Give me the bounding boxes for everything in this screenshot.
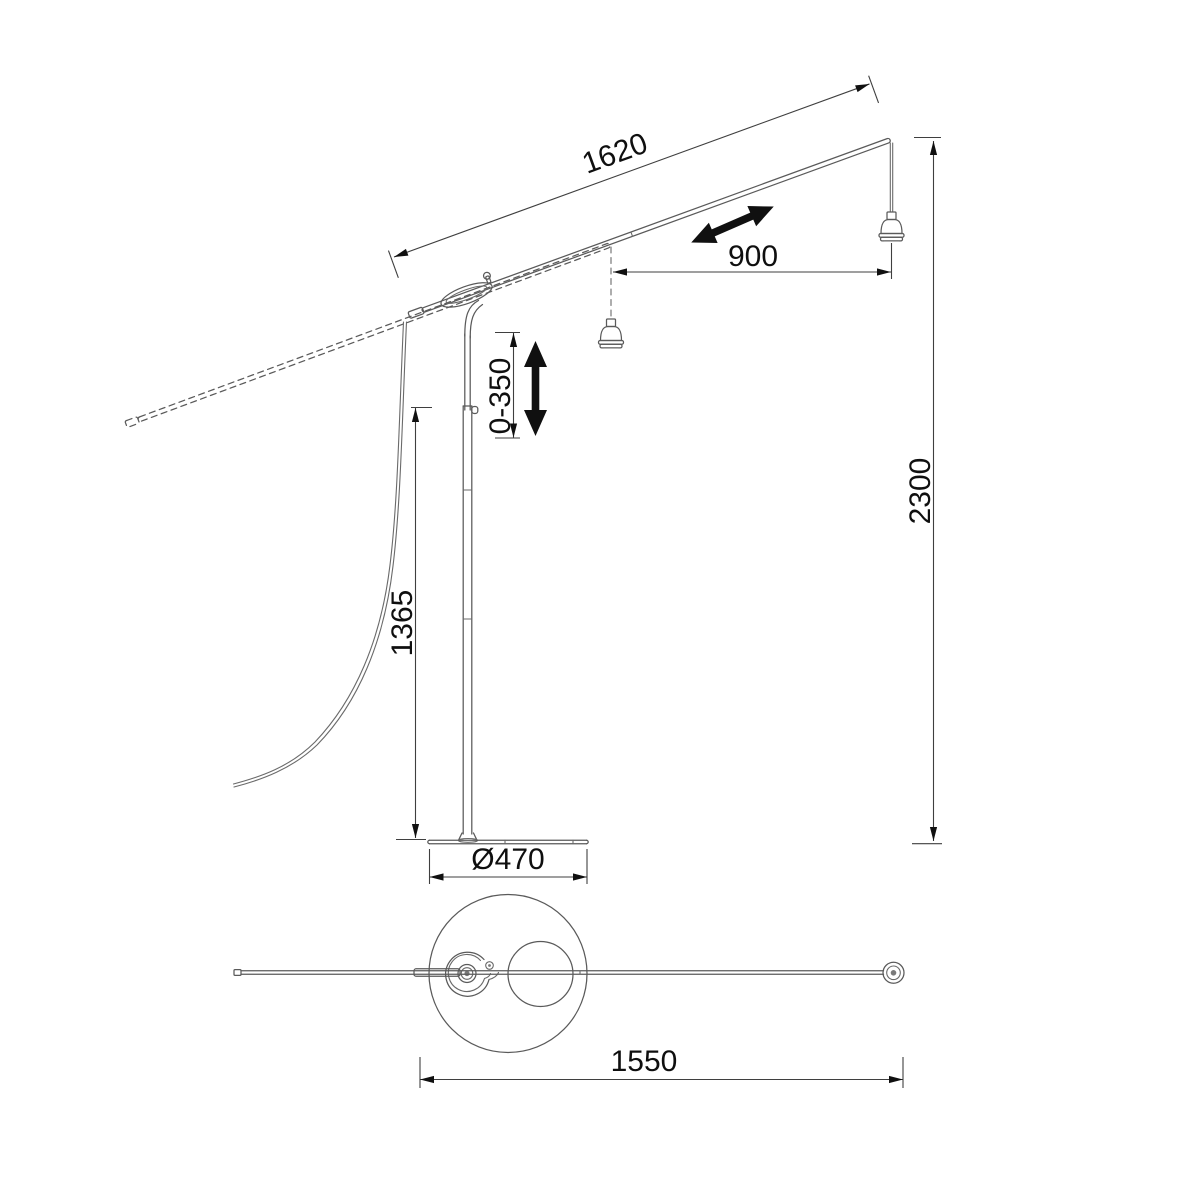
gooseneck-outline-left <box>465 301 479 337</box>
arm-joint-seam <box>631 232 633 236</box>
arm-top <box>234 969 884 976</box>
dim-label-stand-height: 1365 <box>386 590 419 657</box>
arm-clamp <box>438 278 495 312</box>
socket-top <box>883 962 904 983</box>
dim-label-overall-width: 1550 <box>611 1045 678 1078</box>
dim-label-arm-length: 1620 <box>578 127 652 181</box>
arm-top-end-cap <box>234 970 241 976</box>
height-lock-knob <box>472 407 478 414</box>
dimension-drop-adjustment: 0-350 <box>484 333 520 439</box>
dim-label-base-diameter: Ø470 <box>471 843 544 876</box>
dimension-overall-height: 2300 <box>904 138 942 844</box>
side-view <box>125 127 904 844</box>
technical-drawing-page: 1620 900 0-350 2300 <box>0 0 1182 1182</box>
dim-label-drop-adjustment: 0-350 <box>484 358 517 435</box>
pendant-socket <box>879 212 904 241</box>
dim-label-slide-travel: 900 <box>728 240 778 273</box>
dimension-base-diameter: Ø470 <box>430 843 588 884</box>
arm-top-collar <box>414 969 460 976</box>
pendant-socket-alternate <box>599 319 624 348</box>
dimension-stand-height: 1365 <box>386 408 432 840</box>
top-view <box>234 895 904 1053</box>
dim-label-overall-height: 2300 <box>904 458 937 525</box>
gooseneck-outline-right <box>470 305 482 339</box>
pole <box>463 334 478 834</box>
power-cord <box>234 322 407 787</box>
pendant-main <box>879 143 904 241</box>
dimension-arm-length: 1620 <box>378 48 878 278</box>
floor-lamp-dimension-drawing: 1620 900 0-350 2300 <box>0 0 1182 1182</box>
dimension-slide-travel: 900 <box>613 240 892 279</box>
pendant-alternate <box>599 247 624 348</box>
vertical-adjust-arrow <box>524 341 547 436</box>
